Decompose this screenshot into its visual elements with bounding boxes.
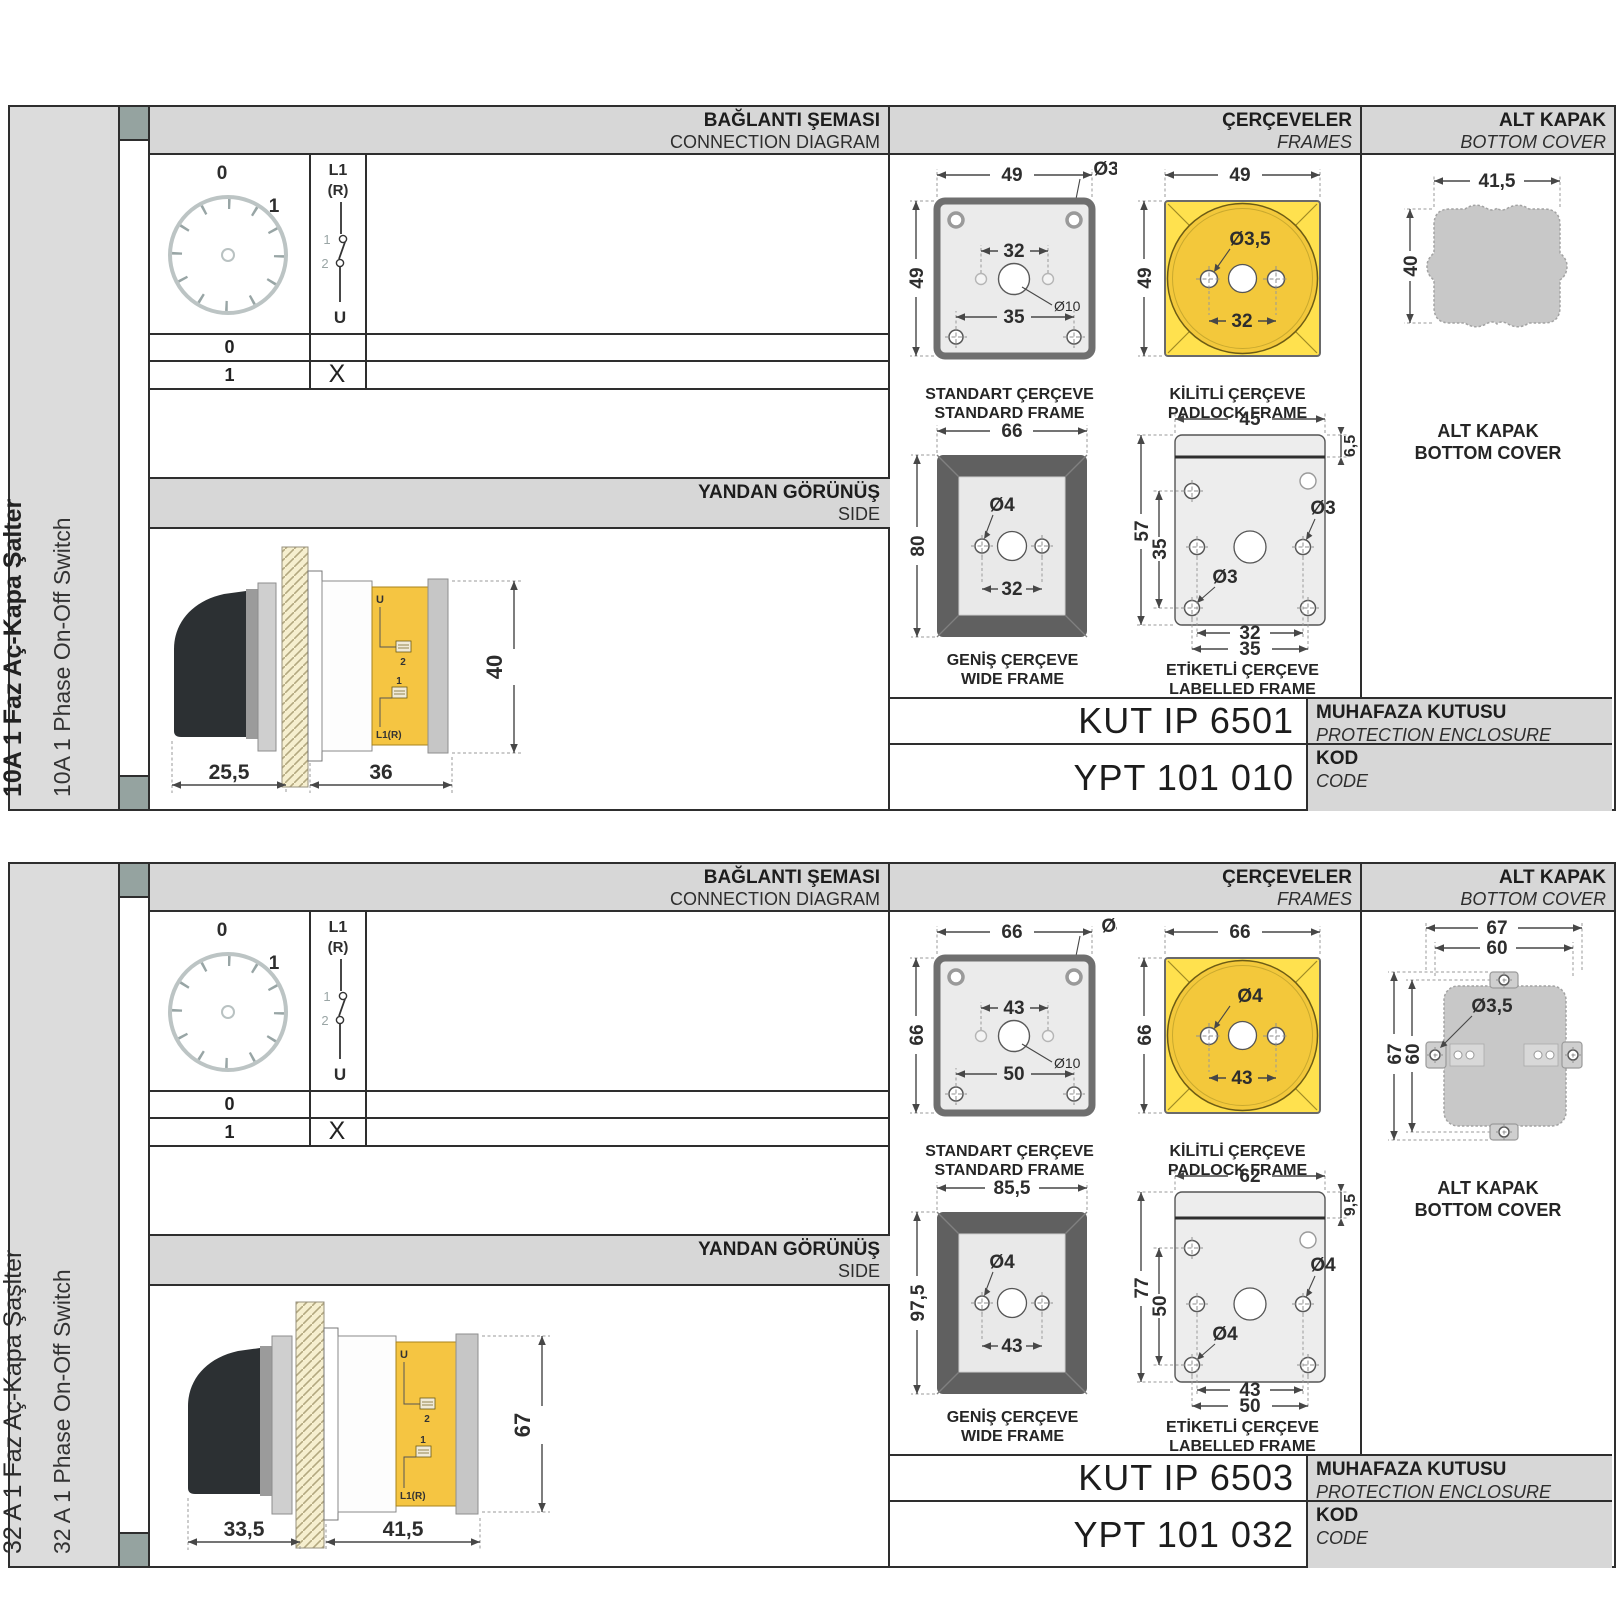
code-label: KOD CODE	[1306, 1502, 1612, 1568]
strip-cap-bottom	[120, 1532, 148, 1566]
frames-header-en: FRAMES	[890, 132, 1352, 153]
product-title-english: 10A 1 Phase On-Off Switch	[49, 517, 76, 797]
dim-cover-width-inner: 60	[1486, 938, 1507, 959]
connection-header-tr: BAĞLANTI ŞEMASI	[150, 110, 880, 132]
dim-std-bottom: 35	[1003, 307, 1025, 328]
cover-caption: ALT KAPAK BOTTOM COVER	[1370, 1178, 1606, 1221]
spacer-plate	[308, 571, 322, 761]
standard-frame-caption-tr: STANDART ÇERÇEVE	[925, 386, 1094, 403]
table-row-1: 1	[150, 362, 309, 388]
labelled-frame-drawing: 45 6,5 57 35	[1125, 409, 1360, 659]
dim-std-holes: 43	[1003, 998, 1024, 1019]
cover-shape	[1427, 205, 1567, 327]
dim-lab-strip: 9,5	[1342, 1194, 1359, 1216]
cover-caption-tr: ALT KAPAK	[1437, 1178, 1538, 1198]
side-label-1: 1	[396, 676, 402, 687]
labelled-frame-caption: ETİKETLİ ÇERÇEVE LABELLED FRAME	[1125, 661, 1360, 699]
product-title-english: 32 A 1 Phase On-Off Switch	[49, 1269, 76, 1554]
dim-side-height: 40	[482, 655, 507, 679]
connection-header-tr: BAĞLANTI ŞEMASI	[150, 867, 880, 889]
cover-column: 41,5 40 ALT KAPAK BOTTOM COVER	[1362, 155, 1614, 697]
code-label-en: CODE	[1316, 771, 1604, 793]
cover-header-en: BOTTOM COVER	[1362, 889, 1606, 910]
dim-lab-inner: 35	[1150, 538, 1171, 560]
sidebar: 32 A 1 Faz Aç-Kapa Şaşlter 32 A 1 Phase …	[10, 864, 120, 1566]
mounting-panel-hatch	[282, 547, 308, 787]
side-label-2: 2	[400, 657, 406, 668]
table-row-0: 0	[150, 335, 309, 360]
side-label-l1r: L1(R)	[400, 1491, 426, 1502]
dim-lab-strip: 6,5	[1342, 435, 1359, 457]
side-label-l1r: L1(R)	[376, 730, 402, 741]
dim-wide-height: 97,5	[908, 1284, 929, 1321]
dim-pad-height: 49	[1135, 267, 1156, 288]
dim-cover-width: 41,5	[1479, 171, 1516, 192]
dim-cover-width: 67	[1486, 918, 1507, 939]
connection-column: 0 1 L1 (R) 1 2 U	[150, 912, 890, 1566]
dial-diagram: 0 1	[150, 155, 310, 333]
terminal-u-label: U	[334, 1065, 346, 1084]
code-row: YPT 101 010 KOD CODE	[890, 743, 1612, 811]
dim-std-width: 66	[1001, 922, 1022, 943]
dim-lab-hole-bottom: Ø3	[1212, 567, 1237, 588]
dim-lab-hole-mid: Ø3	[1310, 498, 1335, 519]
handle-back	[246, 589, 258, 739]
dim-lab-hole-mid: Ø4	[1310, 1255, 1336, 1276]
labelled-frame-caption-en: LABELLED FRAME	[1169, 681, 1316, 698]
side-label-1: 1	[420, 1435, 426, 1446]
frames-header: ÇERÇEVELER FRAMES	[890, 107, 1362, 155]
dim-lab-hole-bottom: Ø4	[1212, 1324, 1238, 1345]
code-label-tr: KOD	[1316, 748, 1604, 771]
dim-std-center-hole: Ø10	[1054, 1055, 1081, 1071]
product-title-turkish: 10A 1 Faz Aç-Kapa Şalter	[0, 499, 28, 797]
dim-lab-inner: 50	[1150, 1295, 1171, 1316]
standard-frame-drawing: 66 Ø4 66 Ø10	[902, 916, 1117, 1138]
product-panel-32a: 32 A 1 Faz Aç-Kapa Şaşlter 32 A 1 Phase …	[8, 862, 1616, 1568]
enclosure-label: MUHAFAZA KUTUSU PROTECTION ENCLOSURE	[1306, 1456, 1612, 1500]
connection-header: BAĞLANTI ŞEMASI CONNECTION DIAGRAM	[150, 864, 890, 912]
cover-header: ALT KAPAK BOTTOM COVER	[1362, 107, 1614, 155]
wide-frame-caption: GENİŞ ÇERÇEVE WIDE FRAME	[905, 1408, 1120, 1446]
dim-pad-width: 49	[1229, 165, 1250, 186]
frames-header: ÇERÇEVELER FRAMES	[890, 864, 1362, 912]
connection-column: 0 1 L1 (R) 1 2 U	[150, 155, 890, 809]
switch-handle	[174, 591, 246, 737]
dim-std-height: 66	[907, 1024, 928, 1045]
dim-pad-holes: 32	[1231, 311, 1252, 332]
side-header-tr: YANDAN GÖRÜNÜŞ	[150, 1239, 880, 1261]
dial-diagram: 0 1	[150, 912, 310, 1090]
contact-closed-mark: X	[309, 360, 365, 388]
dim-std-corner-hole: Ø3,5	[1093, 159, 1117, 180]
strip-cap-bottom	[120, 775, 148, 809]
standard-frame-caption-tr: STANDART ÇERÇEVE	[925, 1143, 1094, 1160]
side-view-drawing: U 2 1 L1(R)	[150, 531, 770, 811]
dim-std-center-hole: Ø10	[1054, 298, 1081, 314]
dim-pad-width: 66	[1229, 922, 1250, 943]
spacer-plate	[324, 1328, 338, 1520]
contact-2-label: 2	[321, 1013, 328, 1028]
bottom-cover-drawing: 41,5 40	[1370, 163, 1606, 413]
dim-lab-width: 45	[1239, 409, 1261, 430]
handle-back	[260, 1346, 272, 1496]
dim-wide-holes: 32	[1001, 579, 1022, 600]
enclosure-label: MUHAFAZA KUTUSU PROTECTION ENCLOSURE	[1306, 699, 1612, 743]
sidebar: 10A 1 Faz Aç-Kapa Şalter 10A 1 Phase On-…	[10, 107, 120, 809]
binding-strip	[120, 107, 150, 809]
cover-header-tr: ALT KAPAK	[1362, 110, 1606, 132]
switch-handle	[188, 1348, 260, 1494]
switch-body	[322, 581, 372, 751]
terminal-l1-label: L1	[329, 162, 348, 179]
dim-std-corner-hole: Ø4	[1101, 916, 1117, 937]
code-label-tr: KOD	[1316, 1505, 1604, 1528]
side-view-header: YANDAN GÖRÜNÜŞ SIDE	[150, 1234, 890, 1286]
padlock-frame-caption-tr: KİLİTLİ ÇERÇEVE	[1169, 1143, 1305, 1160]
terminal-r-label: (R)	[328, 182, 349, 199]
terminal-u-label: U	[334, 308, 346, 327]
dim-side-height: 67	[510, 1413, 535, 1437]
dim-wide-holes: 43	[1001, 1336, 1022, 1357]
switch-symbol: L1 (R) 1 2 U	[310, 912, 366, 1090]
table-row-1: 1	[150, 1119, 309, 1145]
dim-cover-height-inner: 60	[1403, 1043, 1424, 1064]
dim-std-holes: 32	[1003, 241, 1024, 262]
frames-column: 66 Ø4 66 Ø10	[890, 912, 1362, 1454]
code-label-en: CODE	[1316, 1528, 1604, 1550]
labelled-frame-caption-tr: ETİKETLİ ÇERÇEVE	[1166, 1419, 1319, 1436]
dim-lab-holes-outer: 35	[1239, 639, 1261, 659]
rear-plate	[456, 1334, 478, 1514]
padlock-frame-caption-tr: KİLİTLİ ÇERÇEVE	[1169, 386, 1305, 403]
labelled-frame-caption-tr: ETİKETLİ ÇERÇEVE	[1166, 662, 1319, 679]
dim-lab-height: 77	[1132, 1277, 1153, 1298]
dim-std-height: 49	[907, 267, 928, 288]
wide-frame-caption-en: WIDE FRAME	[961, 1428, 1064, 1445]
product-panel-10a: 10A 1 Faz Aç-Kapa Şalter 10A 1 Phase On-…	[8, 105, 1616, 811]
side-view-header: YANDAN GÖRÜNÜŞ SIDE	[150, 477, 890, 529]
dim-cover-hole: Ø3,5	[1471, 996, 1513, 1017]
cover-header-tr: ALT KAPAK	[1362, 867, 1606, 889]
code-row: YPT 101 032 KOD CODE	[890, 1500, 1612, 1568]
cover-caption: ALT KAPAK BOTTOM COVER	[1370, 421, 1606, 464]
cover-header-en: BOTTOM COVER	[1362, 132, 1606, 153]
frames-header-tr: ÇERÇEVELER	[890, 867, 1352, 889]
wide-frame-drawing: 85,5 97,5 Ø4	[905, 1174, 1120, 1404]
dim-lab-holes-outer: 50	[1239, 1396, 1260, 1416]
side-label-u: U	[400, 1349, 408, 1361]
product-code: YPT 101 032	[890, 1502, 1306, 1568]
strip-cap-top	[120, 864, 148, 898]
enclosure-row: KUT IP 6501 MUHAFAZA KUTUSU PROTECTION E…	[890, 697, 1612, 743]
standard-frame-drawing: 49 Ø3,5 49 Ø10	[902, 159, 1117, 381]
labelled-frame-caption-en: LABELLED FRAME	[1169, 1438, 1316, 1455]
dim-wide-height: 80	[908, 535, 929, 556]
padlock-frame-drawing: 49 49 Ø3,5	[1130, 159, 1345, 381]
contact-1-label: 1	[323, 232, 330, 247]
cover-caption-tr: ALT KAPAK	[1437, 421, 1538, 441]
dim-pad-hole: Ø4	[1237, 986, 1263, 1007]
labelled-frame-drawing: 62 9,5 77 50	[1125, 1166, 1360, 1416]
cover-caption-en: BOTTOM COVER	[1415, 1200, 1562, 1220]
dim-wide-hole: Ø4	[989, 495, 1015, 516]
panel-content: BAĞLANTI ŞEMASI CONNECTION DIAGRAM ÇERÇE…	[150, 107, 1614, 809]
enclosure-label-tr: MUHAFAZA KUTUSU	[1316, 702, 1604, 725]
padlock-frame-drawing: 66 66 Ø4	[1130, 916, 1345, 1138]
wide-frame-caption-tr: GENİŞ ÇERÇEVE	[947, 1409, 1079, 1426]
dim-wide-width: 85,5	[994, 1178, 1031, 1199]
enclosure-code: KUT IP 6501	[890, 699, 1306, 743]
cover-column: 67 60 67 60	[1362, 912, 1614, 1454]
dim-pad-height: 66	[1135, 1024, 1156, 1045]
contact-1-label: 1	[323, 989, 330, 1004]
dial-position-0: 0	[217, 163, 228, 184]
terminal-r-label: (R)	[328, 939, 349, 956]
wide-frame-drawing: 66 80 Ø4	[905, 417, 1120, 647]
wide-frame-caption-en: WIDE FRAME	[961, 671, 1064, 688]
strip-cap-top	[120, 107, 148, 141]
side-label-2: 2	[424, 1414, 430, 1425]
labelled-frame-caption: ETİKETLİ ÇERÇEVE LABELLED FRAME	[1125, 1418, 1360, 1456]
dim-pad-holes: 43	[1231, 1068, 1252, 1089]
dim-side-body: 36	[369, 761, 392, 784]
cover-caption-en: BOTTOM COVER	[1415, 443, 1562, 463]
table-row-0: 0	[150, 1092, 309, 1117]
side-header-tr: YANDAN GÖRÜNÜŞ	[150, 482, 880, 504]
rear-plate	[428, 579, 448, 753]
connection-header-en: CONNECTION DIAGRAM	[150, 889, 880, 910]
product-code: YPT 101 010	[890, 745, 1306, 811]
switch-symbol: L1 (R) 1 2 U	[310, 155, 366, 333]
dim-lab-width: 62	[1239, 1166, 1260, 1187]
contact-2-label: 2	[321, 256, 328, 271]
terminal-l1-label: L1	[329, 919, 348, 936]
code-label: KOD CODE	[1306, 745, 1612, 811]
dim-std-bottom: 50	[1003, 1064, 1024, 1085]
enclosure-code: KUT IP 6503	[890, 1456, 1306, 1500]
front-plate	[258, 583, 276, 751]
switch-body	[338, 1336, 396, 1512]
dim-wide-hole: Ø4	[989, 1252, 1015, 1273]
dim-pad-hole: Ø3,5	[1229, 229, 1271, 250]
dim-side-handle: 33,5	[224, 1518, 265, 1541]
side-header-en: SIDE	[150, 504, 880, 525]
dim-lab-height: 57	[1132, 520, 1153, 541]
panel-content: BAĞLANTI ŞEMASI CONNECTION DIAGRAM ÇERÇE…	[150, 864, 1614, 1566]
side-view-drawing: U 2 1 L1(R)	[150, 1288, 770, 1568]
side-header-en: SIDE	[150, 1261, 880, 1282]
binding-strip	[120, 864, 150, 1566]
bottom-cover-drawing: 67 60 67 60	[1370, 916, 1606, 1174]
frames-column: 49 Ø3,5 49 Ø10	[890, 155, 1362, 697]
wide-frame-caption-tr: GENİŞ ÇERÇEVE	[947, 652, 1079, 669]
dim-side-body: 41,5	[383, 1518, 424, 1541]
dim-side-handle: 25,5	[209, 761, 250, 784]
contact-closed-mark: X	[309, 1117, 365, 1145]
dial-position-0: 0	[217, 920, 228, 941]
connection-header: BAĞLANTI ŞEMASI CONNECTION DIAGRAM	[150, 107, 890, 155]
dim-std-width: 49	[1001, 165, 1022, 186]
mounting-panel-hatch	[296, 1302, 324, 1548]
enclosure-label-tr: MUHAFAZA KUTUSU	[1316, 1459, 1604, 1482]
frames-header-en: FRAMES	[890, 889, 1352, 910]
catalog-page: 10A 1 Faz Aç-Kapa Şalter 10A 1 Phase On-…	[0, 0, 1623, 1623]
cover-header: ALT KAPAK BOTTOM COVER	[1362, 864, 1614, 912]
enclosure-row: KUT IP 6503 MUHAFAZA KUTUSU PROTECTION E…	[890, 1454, 1612, 1500]
dim-cover-height: 40	[1401, 255, 1422, 276]
dim-wide-width: 66	[1001, 421, 1022, 442]
front-plate	[272, 1336, 292, 1514]
product-title-turkish: 32 A 1 Faz Aç-Kapa Şaşlter	[0, 1250, 28, 1554]
wide-frame-caption: GENİŞ ÇERÇEVE WIDE FRAME	[905, 651, 1120, 689]
connection-header-en: CONNECTION DIAGRAM	[150, 132, 880, 153]
side-label-u: U	[376, 594, 384, 606]
frames-header-tr: ÇERÇEVELER	[890, 110, 1352, 132]
